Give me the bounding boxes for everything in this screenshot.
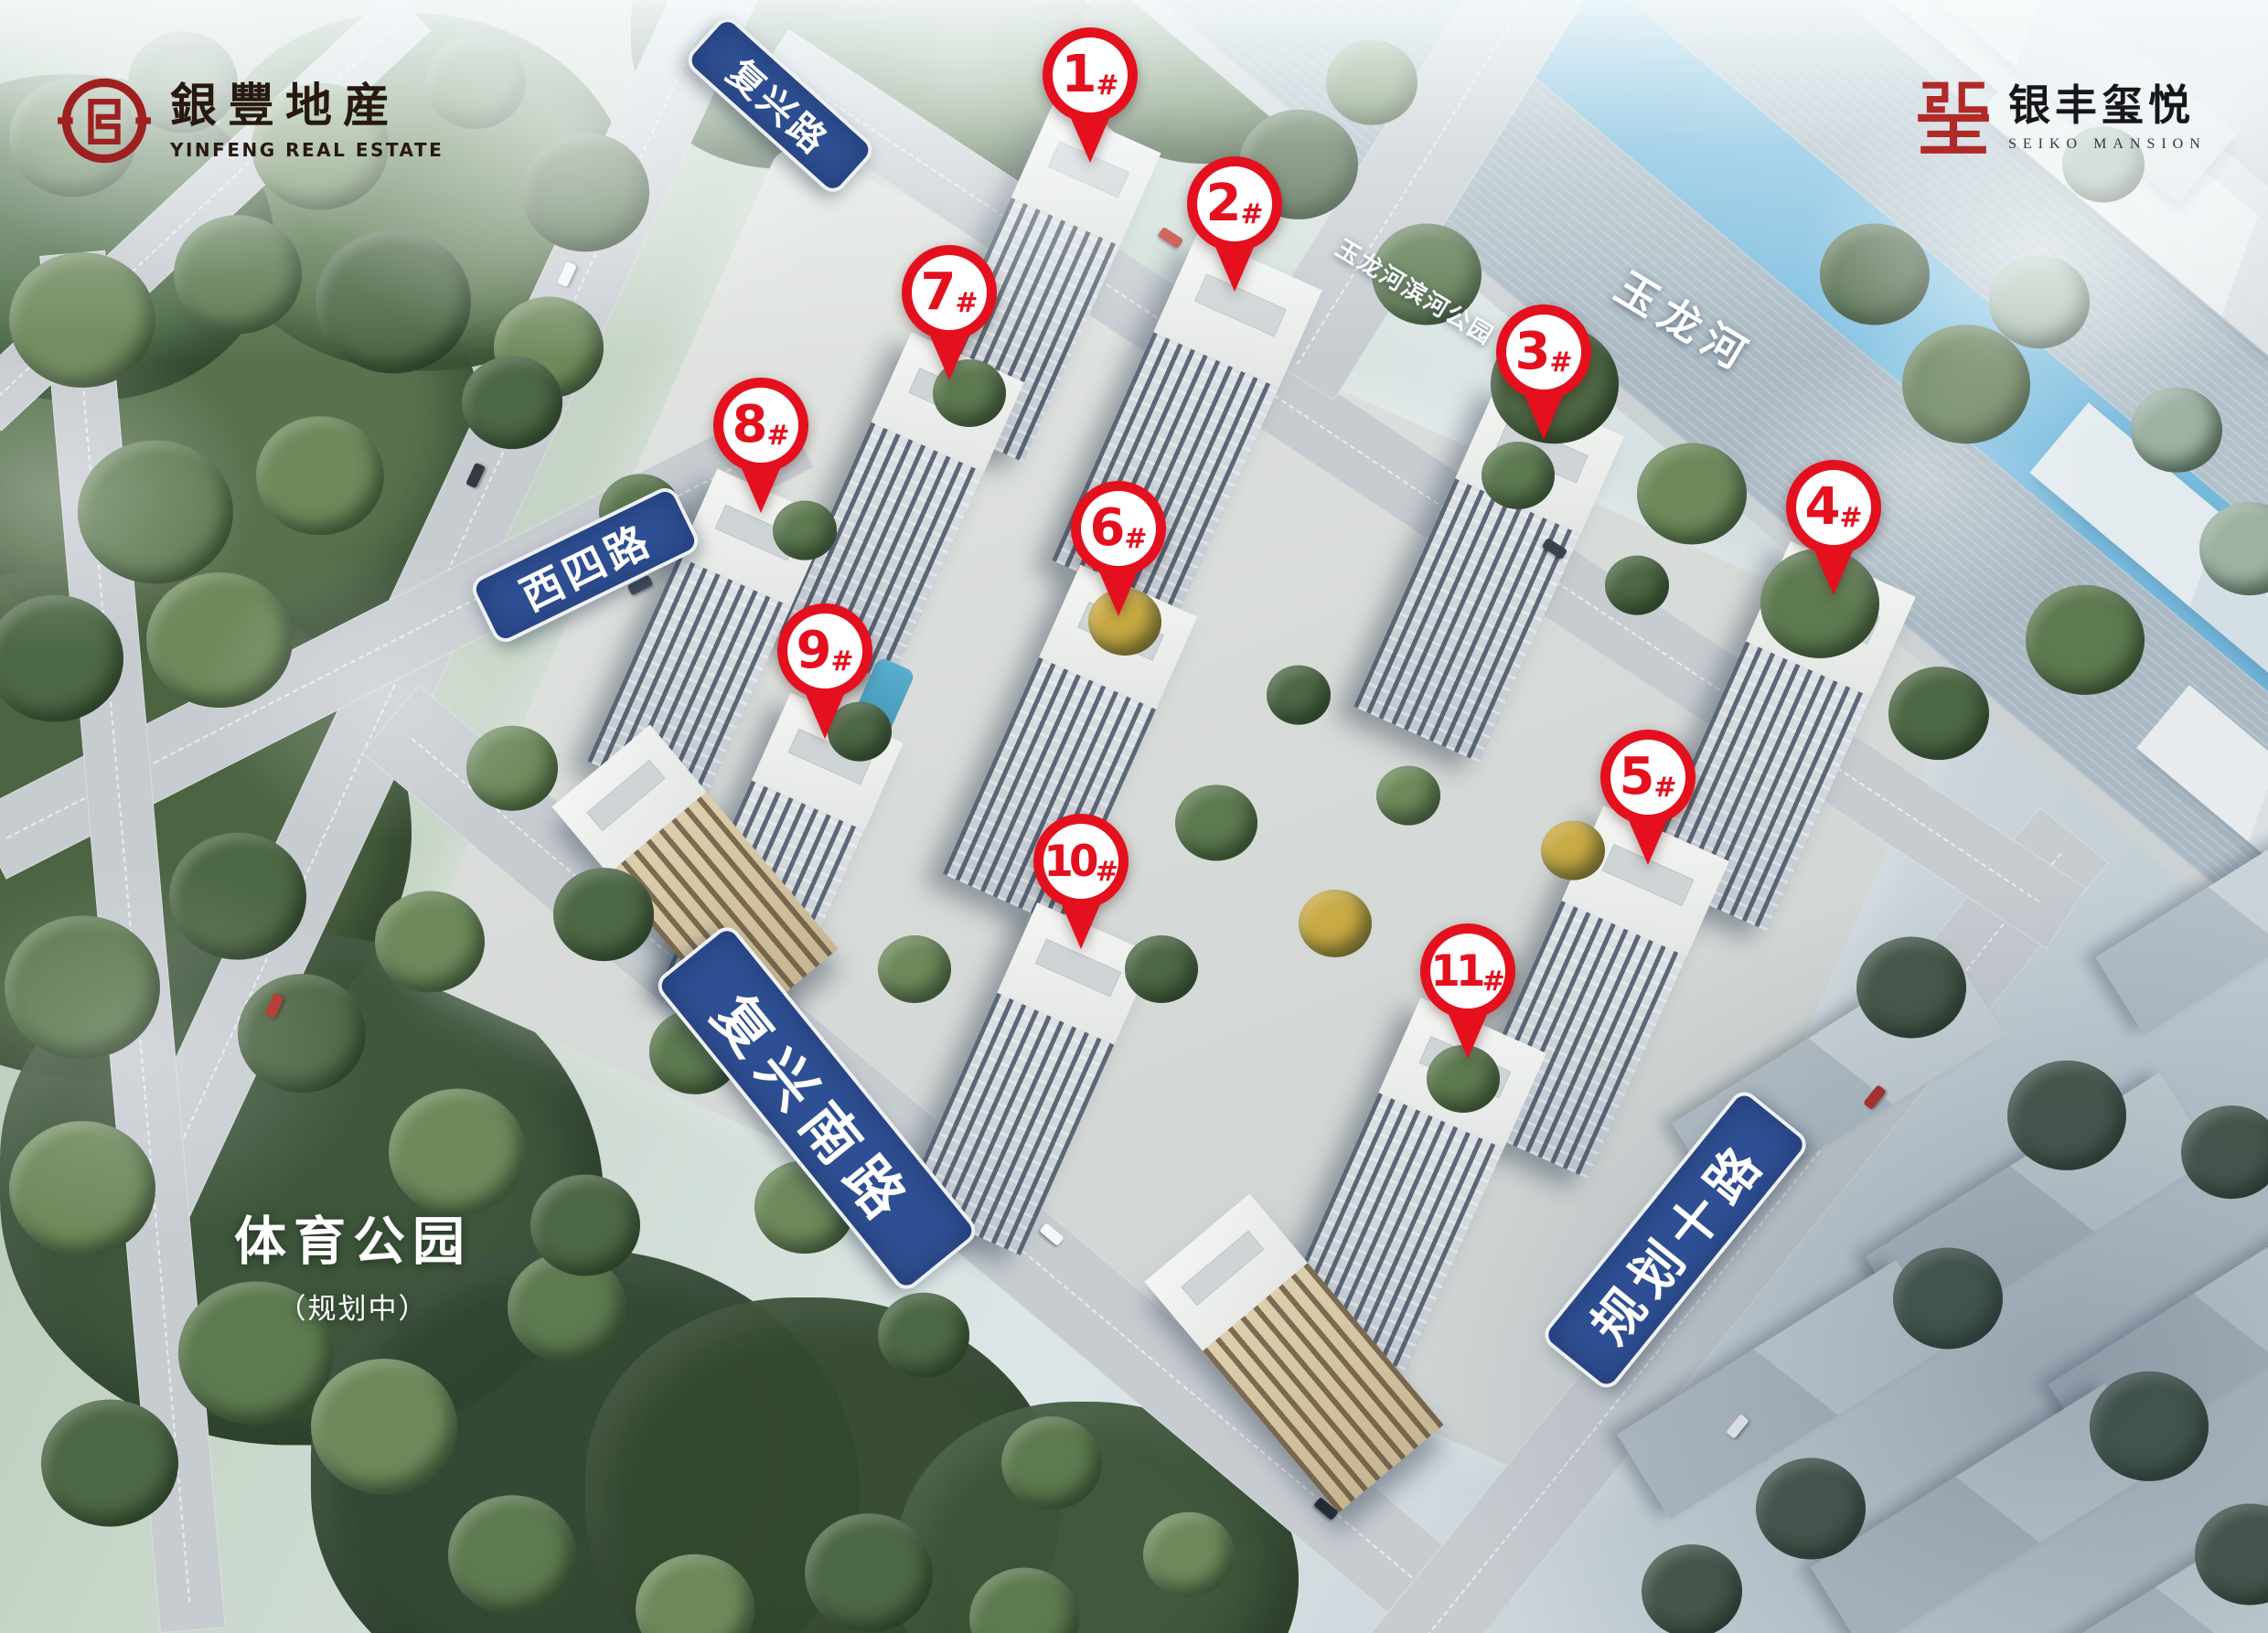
building-marker-7: 7# — [902, 245, 997, 380]
marker-hash-suffix: # — [1653, 772, 1676, 804]
marker-number: 5 — [1619, 752, 1653, 803]
river-label: 玉龙河 — [1605, 255, 1765, 385]
marker-circle: 1# — [1043, 27, 1138, 123]
developer-logo: 銀豐地産 YINFENG REAL ESTATE — [57, 73, 444, 168]
sports-park-title: 体育公园 — [234, 1200, 472, 1275]
sports-park-subtitle: （规划中） — [234, 1286, 472, 1327]
marker-number: 4 — [1804, 482, 1838, 533]
marker-number: 1 — [1061, 49, 1095, 101]
building-marker-2: 2# — [1187, 156, 1282, 292]
project-seal-icon — [1913, 77, 1994, 157]
marker-circle: 11# — [1420, 923, 1515, 1019]
road-sign-fuxing-road: 复兴路 — [682, 13, 878, 198]
marker-number: 11 — [1430, 950, 1481, 993]
road-sign-label: 西四路 — [509, 507, 661, 623]
building-marker-6: 6# — [1071, 481, 1166, 616]
marker-hash-suffix: # — [766, 420, 789, 452]
building-marker-8: 8# — [713, 378, 808, 513]
marker-circle: 5# — [1600, 730, 1696, 825]
marker-circle: 3# — [1496, 304, 1591, 400]
developer-name-cn: 銀豐地産 — [170, 80, 444, 134]
marker-number: 6 — [1089, 503, 1123, 554]
marker-hash-suffix: # — [1549, 347, 1572, 379]
building-marker-5: 5# — [1600, 730, 1696, 865]
road-sign-label: 复兴南路 — [697, 975, 936, 1243]
road-sign-label: 规划十路 — [1570, 1123, 1780, 1357]
marker-hash-suffix: # — [1124, 523, 1147, 555]
marker-hash-suffix: # — [955, 287, 978, 319]
marker-number: 9 — [796, 625, 829, 677]
road-sign-fuxing-south-road: 复兴南路 — [652, 922, 981, 1295]
marker-number: 2 — [1205, 178, 1239, 229]
road-sign-planned-road-10: 规划十路 — [1539, 1086, 1812, 1393]
marker-number: 10 — [1043, 840, 1094, 883]
marker-hash-suffix: # — [1482, 966, 1505, 998]
building-marker-9: 9# — [777, 603, 872, 739]
marker-hash-suffix: # — [1839, 502, 1862, 534]
annotation-overlay: 銀豐地産 YINFENG REAL ESTATE 银丰玺悦 SEIKO MANS… — [0, 0, 2268, 1633]
project-name-en: SEIKO MANSION — [2008, 136, 2207, 153]
building-marker-1: 1# — [1043, 27, 1138, 163]
marker-circle: 9# — [777, 603, 872, 699]
road-sign-xisi-road: 西四路 — [467, 484, 702, 647]
project-logo: 银丰玺悦 SEIKO MANSION — [1913, 77, 2207, 157]
marker-number: 3 — [1514, 326, 1548, 378]
developer-name-en: YINFENG REAL ESTATE — [170, 139, 444, 161]
marker-circle: 2# — [1187, 156, 1282, 251]
marker-circle: 10# — [1033, 814, 1129, 909]
marker-hash-suffix: # — [1240, 198, 1263, 230]
building-marker-11: 11# — [1420, 923, 1515, 1059]
marker-circle: 6# — [1071, 481, 1166, 576]
marker-hash-suffix: # — [1096, 69, 1118, 101]
marker-number: 7 — [920, 267, 954, 318]
developer-seal-icon — [57, 73, 152, 168]
marker-circle: 4# — [1786, 460, 1881, 555]
marker-number: 8 — [732, 400, 765, 451]
site-plan-stage: 銀豐地産 YINFENG REAL ESTATE 银丰玺悦 SEIKO MANS… — [0, 0, 2268, 1633]
marker-circle: 7# — [902, 245, 997, 340]
sports-park-label: 体育公园 （规划中） — [234, 1200, 472, 1327]
building-marker-10: 10# — [1033, 814, 1129, 949]
building-marker-4: 4# — [1786, 460, 1881, 595]
road-sign-label: 复兴路 — [718, 45, 843, 165]
marker-hash-suffix: # — [830, 646, 853, 678]
marker-hash-suffix: # — [1096, 856, 1118, 888]
building-marker-3: 3# — [1496, 304, 1591, 440]
riverside-park-label: 玉龙河滨河公园 — [1330, 230, 1501, 352]
marker-circle: 8# — [713, 378, 808, 473]
project-name-cn: 银丰玺悦 — [2008, 81, 2207, 130]
